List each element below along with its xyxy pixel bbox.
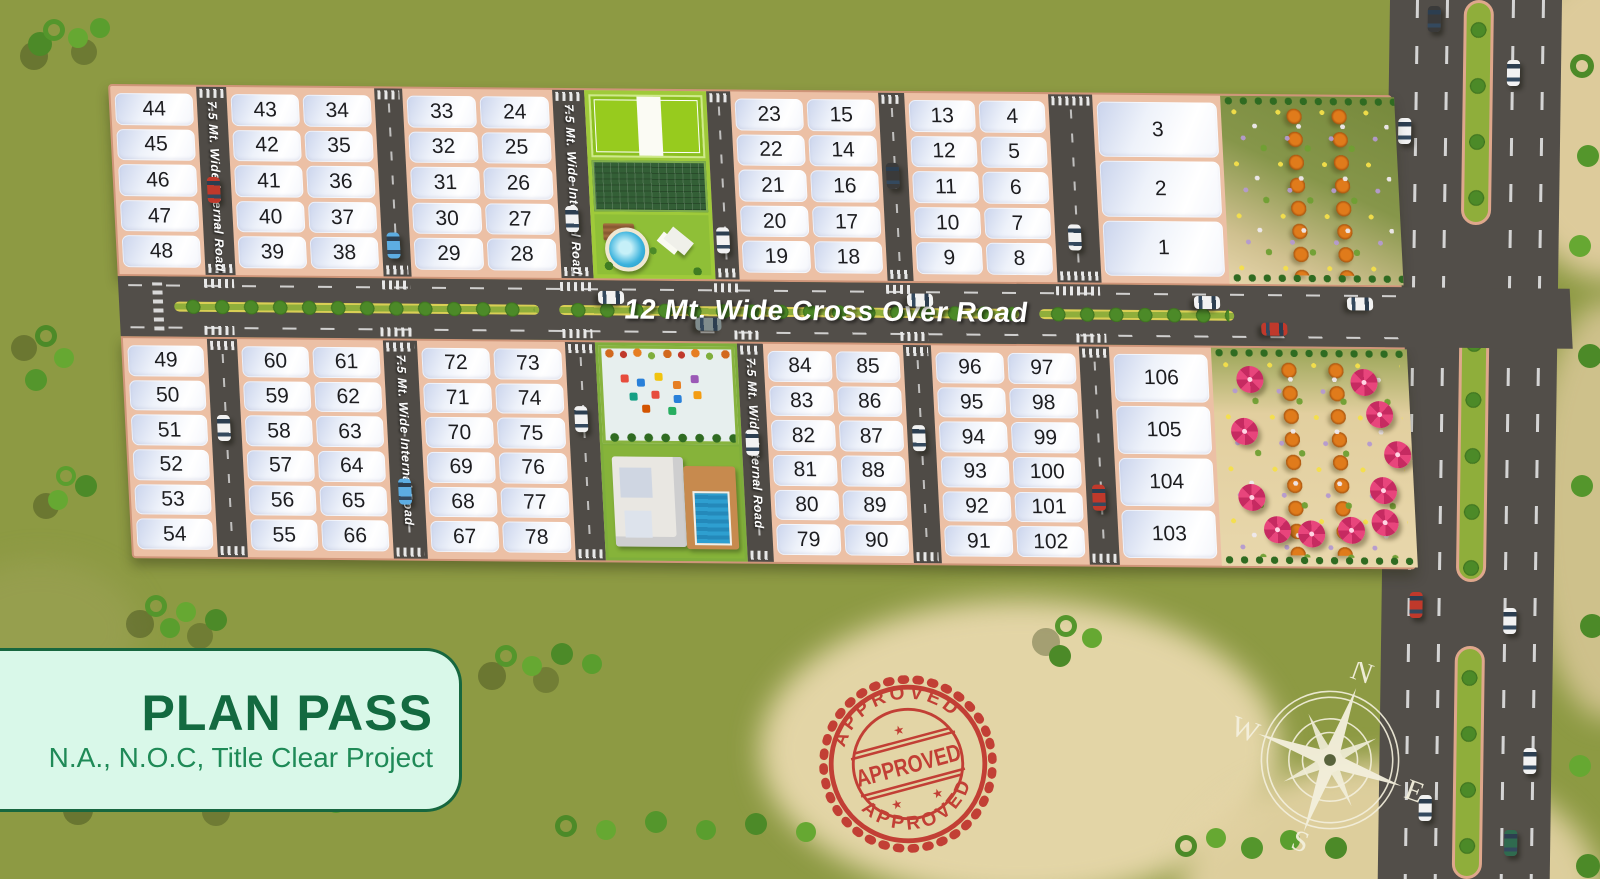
plot-38: 38 [310, 237, 380, 269]
cross-over-road: 12 Mt. Wide Cross Over Road [118, 276, 1573, 349]
plot-block-14-23: 23152214211620171918 [730, 91, 888, 280]
crosswalk [204, 279, 234, 288]
plot-79: 79 [776, 524, 842, 555]
plot-number: 104 [1149, 470, 1185, 494]
plot-number: 65 [341, 489, 366, 513]
plot-block-55-66: 606159625863576456655566 [237, 339, 394, 558]
plot-number: 9 [943, 246, 956, 270]
car [1503, 608, 1516, 634]
plot-number: 61 [334, 350, 359, 374]
median-trees [1457, 4, 1498, 222]
plot-34: 34 [302, 95, 372, 127]
plot-block-44-48: 4445464748 [110, 86, 206, 275]
plot-92: 92 [942, 491, 1012, 522]
tennis-court [588, 94, 705, 158]
pink-umbrella [1365, 401, 1393, 428]
pink-umbrella [1383, 441, 1411, 468]
plot-28: 28 [487, 239, 558, 271]
plot-16: 16 [810, 170, 880, 202]
plot-number: 105 [1146, 418, 1182, 442]
plot-68: 68 [428, 486, 498, 517]
plot-number: 3 [1151, 118, 1164, 142]
plot-number: 36 [329, 170, 354, 194]
plot-98: 98 [1009, 388, 1079, 419]
tree-cluster [40, 330, 52, 342]
plot-48: 48 [122, 236, 202, 268]
plot-number: 72 [444, 351, 469, 375]
plot-number: 84 [788, 354, 813, 378]
plot-103: 103 [1121, 510, 1217, 559]
plot-11: 11 [912, 171, 980, 203]
crosswalk [562, 329, 592, 338]
plot-5: 5 [980, 136, 1048, 168]
plot-55: 55 [250, 520, 319, 551]
plot-44: 44 [114, 93, 194, 125]
plot-99: 99 [1011, 422, 1081, 453]
plot-number: 82 [791, 424, 816, 448]
car [907, 293, 934, 306]
plot-22: 22 [736, 134, 806, 166]
tree-cluster [48, 24, 60, 36]
plot-number: 55 [272, 523, 297, 547]
plot-62: 62 [314, 381, 383, 412]
plot-97: 97 [1007, 353, 1077, 384]
car [886, 163, 900, 189]
car [1194, 296, 1221, 309]
plot-number: 49 [154, 349, 179, 373]
plot-block-79-90: 848583868287818880897990 [763, 344, 914, 563]
tree-cluster [500, 650, 512, 662]
plot-24: 24 [479, 96, 550, 128]
plot-83: 83 [769, 385, 835, 416]
swimming-pool [692, 491, 731, 545]
plot-15: 15 [806, 99, 876, 131]
plot-number: 99 [1033, 426, 1058, 450]
car [1261, 323, 1288, 336]
plot-number: 34 [325, 99, 350, 123]
badge-title: PLAN PASS [142, 687, 433, 740]
clubhouse-zone [603, 445, 745, 559]
plot-block-24-33: 33243225312630272928 [402, 89, 562, 278]
plot-59: 59 [243, 381, 312, 412]
plot-number: 12 [932, 140, 957, 164]
plot-number: 48 [149, 240, 174, 264]
plot-number: 91 [966, 529, 991, 553]
road-centerline [222, 354, 234, 542]
plot-20: 20 [740, 205, 810, 237]
plot-50: 50 [129, 380, 207, 411]
tree-cluster [150, 600, 162, 612]
plot-60: 60 [241, 346, 310, 377]
plot-number: 102 [1033, 530, 1069, 554]
pink-umbrella [1369, 477, 1397, 504]
autumn-trees [601, 346, 732, 361]
car [1504, 830, 1517, 856]
plot-number: 17 [834, 210, 859, 234]
site-plan: 4445464748 7.5 Mt. Wide Internal Road 43… [108, 84, 1416, 569]
plot-sector-south: 495051525354 606159625863576456655566 7.… [121, 336, 1416, 569]
pink-umbrella [1371, 509, 1399, 536]
plot-number: 74 [517, 387, 542, 411]
plot-number: 68 [451, 490, 476, 514]
tree-cluster [1180, 840, 1192, 852]
plot-number: 45 [144, 133, 169, 157]
plot-number: 69 [449, 455, 474, 479]
plot-number: 98 [1031, 391, 1056, 415]
plot-63: 63 [316, 416, 385, 447]
plot-number: 86 [857, 390, 882, 414]
plot-number: 15 [829, 103, 854, 127]
plot-number: 39 [260, 241, 285, 265]
plot-number: 20 [762, 209, 787, 233]
plot-35: 35 [304, 130, 374, 162]
star-icon: ★ [892, 722, 906, 738]
plot-number: 58 [267, 419, 292, 443]
plot-number: 100 [1029, 460, 1065, 484]
plot-23: 23 [734, 98, 804, 130]
play-equipment [620, 374, 628, 382]
plot-number: 66 [343, 524, 368, 548]
plot-25: 25 [481, 132, 552, 164]
plot-number: 27 [508, 207, 533, 231]
plot-number: 87 [859, 424, 884, 448]
plot-number: 26 [506, 171, 531, 195]
plot-number: 29 [437, 242, 462, 266]
plot-number: 70 [447, 421, 472, 445]
car [745, 430, 759, 456]
plot-80: 80 [774, 490, 840, 521]
plot-29: 29 [414, 238, 485, 270]
car [1523, 748, 1536, 774]
car [1398, 118, 1411, 144]
plot-40: 40 [236, 201, 306, 233]
car [386, 232, 400, 258]
plot-number: 71 [445, 386, 470, 410]
plot-number: 103 [1151, 522, 1187, 546]
plot-39: 39 [238, 237, 308, 269]
plot-45: 45 [116, 129, 196, 161]
plot-number: 67 [452, 525, 477, 549]
car [207, 177, 221, 203]
plot-93: 93 [940, 456, 1010, 487]
plot-number: 5 [1008, 140, 1021, 164]
road-centerline [1094, 362, 1106, 550]
plot-number: 83 [789, 389, 814, 413]
plot-26: 26 [483, 167, 554, 199]
plot-number: 106 [1143, 366, 1179, 390]
plot-number: 44 [142, 97, 167, 121]
plot-95: 95 [937, 387, 1007, 418]
plot-12: 12 [910, 136, 978, 168]
plot-75: 75 [497, 418, 567, 449]
plot-2: 2 [1099, 161, 1222, 217]
plot-73: 73 [493, 348, 563, 379]
plot-number: 7 [1011, 211, 1024, 235]
plot-86: 86 [837, 386, 903, 417]
plot-number: 13 [930, 104, 955, 128]
plot-71: 71 [423, 382, 493, 413]
star-icon: ★ [890, 796, 904, 812]
kids-playground [598, 345, 739, 444]
plot-46: 46 [118, 164, 198, 196]
plot-84: 84 [767, 351, 833, 382]
road-centerline [580, 357, 592, 545]
plot-sector-north: 4445464748 7.5 Mt. Wide Internal Road 43… [108, 84, 1402, 287]
plot-number: 30 [435, 206, 460, 230]
plot-3: 3 [1096, 102, 1219, 158]
pink-umbrella [1236, 366, 1264, 393]
plot-61: 61 [312, 347, 381, 378]
lane-marking [1500, 0, 1515, 879]
crosswalk [152, 282, 164, 330]
plot-block-49-54: 495051525354 [123, 338, 218, 557]
crosswalk [1056, 286, 1100, 295]
tree-cluster [1576, 60, 1588, 72]
star-icon: ★ [931, 785, 945, 801]
plot-number: 64 [339, 454, 364, 478]
net-court [592, 161, 709, 213]
plot-number: 56 [270, 488, 295, 512]
car [1068, 224, 1082, 250]
plot-number: 85 [856, 355, 881, 379]
plot-number: 47 [147, 204, 172, 228]
plot-number: 93 [963, 460, 988, 484]
plot-number: 10 [935, 211, 960, 235]
plot-91: 91 [944, 526, 1014, 557]
hedge [1221, 555, 1418, 568]
palm-trees [594, 214, 711, 275]
crosswalk [900, 332, 928, 341]
plot-47: 47 [120, 200, 200, 232]
plot-31: 31 [410, 167, 481, 199]
plot-18: 18 [814, 242, 884, 274]
compass-north: N [1346, 662, 1377, 691]
plot-14: 14 [808, 135, 878, 167]
plot-number: 95 [959, 390, 984, 414]
plot-74: 74 [495, 383, 565, 414]
plot-77: 77 [500, 487, 570, 518]
plot-106: 106 [1113, 354, 1209, 403]
plot-number: 80 [795, 493, 820, 517]
plot-block-67-78: 727371747075697668776778 [417, 341, 576, 560]
plot-57: 57 [246, 450, 315, 481]
plot-90: 90 [844, 525, 910, 556]
plot-number: 14 [831, 139, 856, 163]
plot-21: 21 [738, 170, 808, 202]
compass-rose-icon: N S W E [1232, 662, 1428, 858]
plot-number: 62 [336, 385, 361, 409]
plot-number: 8 [1013, 247, 1026, 271]
pink-umbrella [1238, 484, 1266, 511]
plot-number: 11 [934, 175, 957, 199]
pink-umbrella [1350, 369, 1378, 396]
garden-south [1211, 348, 1418, 568]
plot-number: 41 [257, 169, 282, 193]
plot-58: 58 [245, 416, 314, 447]
plot-number: 21 [761, 174, 786, 198]
plot-number: 53 [161, 487, 186, 511]
plot-72: 72 [421, 348, 491, 379]
plot-42: 42 [232, 130, 302, 162]
plot-8: 8 [986, 243, 1054, 275]
crosswalk [380, 327, 414, 336]
plot-number: 92 [965, 495, 990, 519]
site-map-render: 4445464748 7.5 Mt. Wide Internal Road 43… [0, 0, 1600, 879]
plot-number: 50 [155, 383, 180, 407]
tree-cluster [560, 820, 572, 832]
plot-block-91-102: 969795989499931009210191102 [931, 345, 1090, 564]
plot-7: 7 [984, 207, 1052, 239]
plot-number: 54 [162, 522, 187, 546]
plot-66: 66 [321, 520, 390, 551]
plot-96: 96 [935, 352, 1005, 383]
crosswalk [560, 282, 592, 291]
plot-87: 87 [839, 421, 905, 452]
plot-block-103-106: 106105104103 [1109, 347, 1222, 566]
plot-number: 31 [433, 171, 458, 195]
plot-19: 19 [742, 241, 812, 273]
median-trees [179, 294, 535, 323]
plot-number: 16 [833, 174, 858, 198]
plot-number: 4 [1006, 105, 1019, 129]
plot-number: 24 [502, 100, 527, 124]
plot-53: 53 [134, 484, 212, 515]
plot-88: 88 [840, 455, 906, 486]
crosswalk [204, 326, 234, 335]
plot-10: 10 [914, 207, 982, 239]
plot-36: 36 [306, 166, 376, 198]
plot-56: 56 [248, 485, 317, 516]
plot-number: 33 [429, 100, 454, 124]
hedge [605, 431, 736, 444]
plot-number: 2 [1154, 177, 1167, 201]
plot-70: 70 [425, 417, 495, 448]
car [217, 415, 231, 441]
plot-6: 6 [982, 172, 1050, 204]
plot-number: 73 [516, 352, 541, 376]
plot-number: 28 [510, 243, 535, 267]
car [598, 291, 625, 304]
car [565, 206, 579, 232]
car [716, 227, 730, 253]
compass-west: W [1232, 710, 1264, 750]
road-centerline [917, 360, 929, 548]
median-trees [1448, 652, 1489, 874]
plot-number: 88 [861, 459, 886, 483]
crosswalk [1076, 333, 1106, 342]
plot-block-1-3: 321 [1092, 95, 1230, 284]
plot-number: 46 [146, 168, 171, 192]
compass-south: S [1287, 824, 1313, 858]
plot-number: 18 [836, 246, 861, 270]
plot-number: 75 [519, 421, 544, 445]
car [912, 425, 926, 451]
car [1428, 6, 1441, 32]
plot-32: 32 [408, 131, 479, 163]
plot-number: 22 [759, 138, 784, 162]
plot-30: 30 [412, 202, 483, 234]
plot-number: 6 [1009, 176, 1022, 200]
plot-17: 17 [812, 206, 882, 238]
plot-101: 101 [1014, 492, 1084, 523]
amenity-garden [594, 214, 711, 275]
plot-33: 33 [406, 96, 477, 128]
badge-subtitle: N.A., N.O.C, Title Clear Project [49, 742, 433, 774]
sports-amenity [584, 90, 716, 279]
plot-9: 9 [916, 242, 984, 274]
plot-1: 1 [1102, 220, 1225, 276]
plot-67: 67 [430, 521, 500, 552]
plot-number: 96 [958, 356, 983, 380]
plot-4: 4 [978, 101, 1046, 133]
club-amenity [595, 342, 748, 561]
compass-east: E [1401, 773, 1428, 809]
car [1507, 60, 1520, 86]
plot-number: 97 [1030, 356, 1055, 380]
plot-number: 1 [1157, 236, 1170, 260]
plot-65: 65 [319, 486, 388, 517]
flower-bed [1227, 103, 1396, 277]
plot-100: 100 [1012, 457, 1082, 488]
hedge [1229, 273, 1404, 286]
plot-41: 41 [234, 165, 304, 197]
plot-27: 27 [485, 203, 556, 235]
plot-number: 81 [793, 458, 818, 482]
clubhouse-building [612, 456, 687, 547]
plot-number: 42 [255, 134, 280, 158]
plot-105: 105 [1116, 406, 1212, 455]
plot-number: 59 [265, 384, 290, 408]
car [1347, 297, 1374, 310]
car [398, 479, 412, 505]
crosswalk [714, 283, 738, 292]
plot-89: 89 [842, 490, 908, 521]
plot-number: 52 [159, 453, 184, 477]
plan-pass-badge: PLAN PASS N.A., N.O.C, Title Clear Proje… [0, 648, 462, 812]
plot-number: 35 [327, 134, 352, 158]
pink-umbrella [1298, 520, 1326, 547]
crosswalk [734, 330, 760, 339]
plot-number: 79 [796, 528, 821, 552]
car [1409, 592, 1422, 618]
plot-number: 19 [764, 245, 789, 269]
pink-umbrella [1230, 418, 1258, 445]
plot-number: 90 [864, 528, 889, 552]
plot-number: 63 [338, 420, 363, 444]
lane-marking [1434, 0, 1449, 879]
plot-43: 43 [230, 94, 300, 126]
plot-number: 76 [521, 456, 546, 480]
plot-number: 60 [263, 350, 288, 374]
pink-umbrella [1263, 516, 1291, 543]
plot-104: 104 [1118, 458, 1214, 507]
plot-94: 94 [939, 422, 1009, 453]
plot-number: 89 [863, 494, 888, 518]
tree-cluster [60, 470, 72, 482]
plot-81: 81 [772, 455, 838, 486]
plot-52: 52 [132, 449, 210, 480]
plot-number: 78 [524, 525, 549, 549]
plot-85: 85 [835, 351, 901, 382]
plot-number: 32 [431, 135, 456, 159]
pink-umbrella [1337, 517, 1365, 544]
plot-number: 77 [523, 491, 548, 515]
car [695, 318, 722, 331]
crosswalk [886, 285, 912, 294]
car [574, 406, 588, 432]
cross-road-label: 12 Mt. Wide Cross Over Road [623, 294, 1028, 330]
plot-block-34-43: 43344235413640373938 [226, 87, 384, 276]
